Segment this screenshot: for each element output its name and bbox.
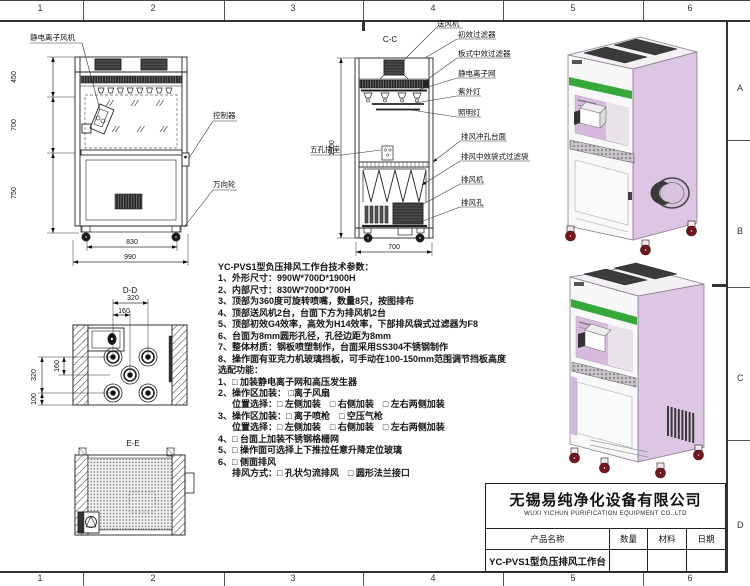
cc-label-supply-fan: 送风机	[437, 18, 460, 28]
front-view	[75, 57, 189, 241]
section-cc-dimensions	[310, 28, 530, 256]
option-line: 3、操作区加装：□ 离子喷枪 □ 空压气枪	[218, 411, 523, 422]
header-date: 日期	[687, 529, 725, 549]
cc-label-exhaust-fan: 排风机	[461, 174, 484, 184]
specs-title: YC-PVS1型负压排风工作台技术参数：	[218, 262, 523, 273]
cc-label-bag-filter: 排风中效袋式过滤袋	[461, 151, 529, 161]
dim-830: 830	[126, 239, 138, 246]
front-label-ion-fan: 静电离子风机	[30, 32, 75, 42]
options-title: 选配功能：	[218, 365, 523, 376]
section-cc-view	[355, 58, 433, 242]
header-material: 材料	[648, 529, 687, 549]
dim-320-top: 320	[127, 295, 139, 302]
front-label-caster: 万向轮	[213, 179, 236, 189]
header-product-name: 产品名称	[486, 529, 610, 549]
dim-750: 750	[11, 187, 18, 199]
dim-160-top: 160	[118, 308, 130, 315]
option-line: 2、操作区加装： □离子风扇	[218, 388, 523, 399]
option-line: 6、□ 侧面排风	[218, 457, 523, 468]
cc-label-light: 照明灯	[458, 107, 481, 117]
company-name-cn: 无锡易纯净化设备有限公司	[486, 489, 725, 510]
option-line: 4、□ 台面上加装不锈钢格栅网	[218, 434, 523, 445]
product-name-value: YC-PVS1型负压排风工作台	[486, 550, 610, 572]
option-line: 排风方式：□ 孔状匀流排风 □ 圆形法兰接口	[218, 468, 523, 479]
cc-label-exhaust-hole: 排风孔	[461, 197, 484, 207]
title-block-headers: 产品名称 数量 材料 日期	[486, 529, 725, 550]
iso-view-2: 易纯净化	[570, 263, 705, 478]
cc-label-perforated-top: 排风冲孔台面	[461, 131, 506, 141]
header-quantity: 数量	[610, 529, 648, 549]
option-line: 位置选择：□ 左侧加装 □ 右侧加装 □ 左右两侧加装	[218, 422, 523, 433]
dim-100-left: 100	[31, 393, 38, 405]
date-value	[687, 550, 725, 572]
view-dd-title: D-D	[123, 286, 137, 295]
cc-label-primary-filter: 初效过滤器	[458, 29, 496, 39]
cc-label-plate-filter: 板式中效过滤器	[458, 48, 511, 58]
front-label-controller: 控制器	[213, 110, 236, 120]
spec-line: 1、外形尺寸：990W*700D*1900H	[218, 273, 523, 284]
cc-label-socket: 五孔插座	[310, 144, 340, 154]
title-block: 无锡易纯净化设备有限公司 WUXI YICHUN PURIFICATION EQ…	[485, 483, 726, 572]
dim-160-left: 160	[54, 360, 61, 372]
drawing-sheet: 1 2 3 4 5 6 1 2 3 4 5 6 A B C D	[0, 0, 750, 586]
spec-line: 7、整体材质：钢板喷塑制作，台面采用SS304不锈钢制作	[218, 342, 523, 353]
spec-line: 6、台面为8mm圆形孔径，孔径边距为8mm	[218, 331, 523, 342]
technical-specs: YC-PVS1型负压排风工作台技术参数： 1、外形尺寸：990W*700D*19…	[218, 262, 523, 480]
cc-label-uv-lamp: 紫外灯	[458, 86, 481, 96]
spec-line: 8、操作面有亚克力机玻璃挡板，可手动在100-150mm范围调节挡板高度	[218, 354, 523, 365]
option-line: 5、□ 操作面可选择上下推拉任意升降定位玻璃	[218, 445, 523, 456]
view-ee-title: E-E	[126, 439, 139, 448]
iso-view-1: 易纯净化	[566, 37, 698, 255]
material-value	[648, 550, 687, 572]
company-block: 无锡易纯净化设备有限公司 WUXI YICHUN PURIFICATION EQ…	[486, 484, 725, 529]
dim-320-left: 320	[31, 369, 38, 381]
dim-450: 450	[11, 71, 18, 83]
spec-line: 2、内部尺寸：830W*700D*700H	[218, 285, 523, 296]
view-dd-dimensions	[38, 299, 148, 405]
option-line: 位置选择：□ 左侧加装 □ 右侧加装 □ 左右两侧加装	[218, 399, 523, 410]
cc-label-ion-net: 静电离子网	[458, 68, 496, 78]
option-line: 1、□ 加装静电离子网和高压发生器	[218, 377, 523, 388]
section-cc-title: C-C	[383, 35, 397, 44]
dim-700-cc: 700	[388, 244, 400, 251]
dim-990: 990	[124, 254, 136, 261]
quantity-value	[610, 550, 648, 572]
spec-line: 5、顶部初效G4效率，高效为H14效率，下部排风袋式过滤器为F8	[218, 319, 523, 330]
spec-line: 3、顶部为360度可旋转喷嘴，数量8只，按图排布	[218, 296, 523, 307]
title-block-values: YC-PVS1型负压排风工作台	[486, 550, 725, 572]
company-name-en: WUXI YICHUN PURIFICATION EQUIPMENT CO.,L…	[486, 511, 725, 517]
dim-700: 700	[11, 119, 18, 131]
view-ee	[75, 448, 194, 535]
spec-line: 4、顶部送风机2台，台面下方为排风机2台	[218, 308, 523, 319]
